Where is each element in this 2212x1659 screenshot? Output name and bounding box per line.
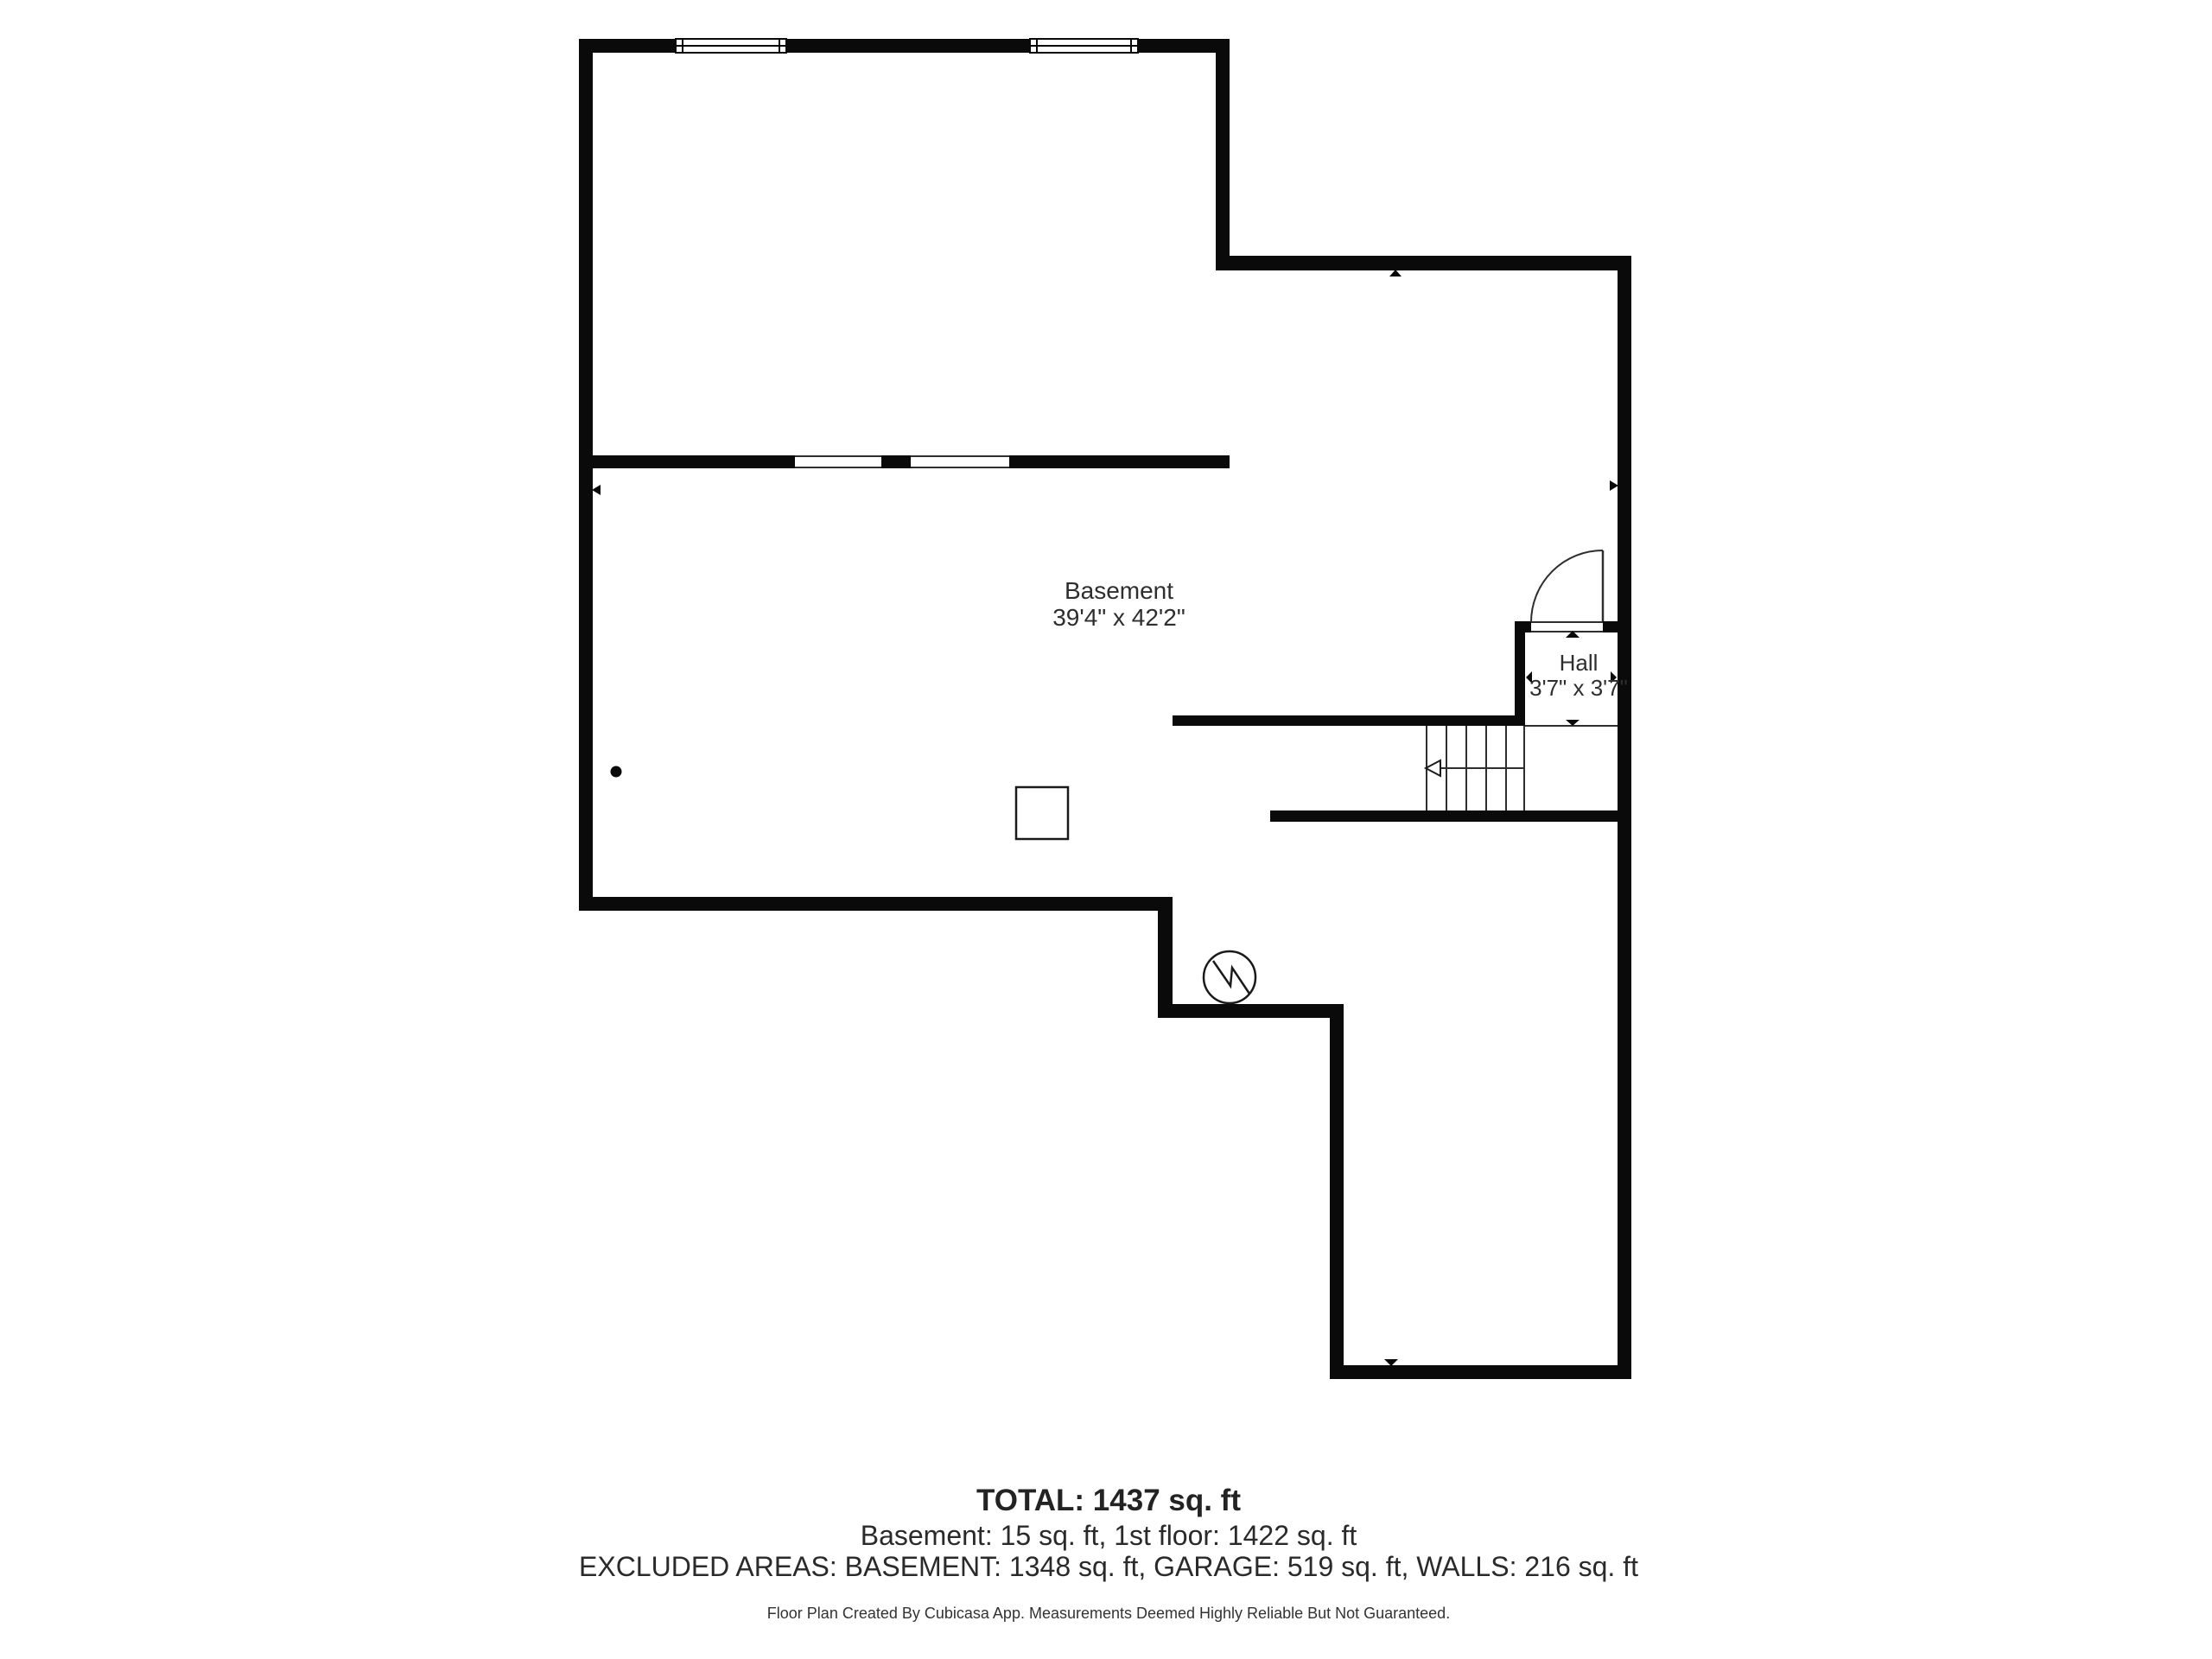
- wall-interior-1: [579, 455, 795, 468]
- stair-direction-arrow: [1426, 760, 1525, 776]
- room-label-basement: Basement 39'4" x 42'2": [1052, 577, 1185, 631]
- room-dimensions: 39'4" x 42'2": [1052, 604, 1185, 631]
- room-dimensions: 3'7" x 3'7": [1529, 676, 1628, 701]
- wall-left: [579, 39, 593, 911]
- disclaimer-text: Floor Plan Created By Cubicasa App. Meas…: [767, 1604, 1450, 1623]
- room-name: Basement: [1052, 577, 1185, 604]
- dimension-arrow-left-icon: [592, 485, 601, 495]
- opening-line: [795, 455, 881, 457]
- support-post-dot-icon: [611, 766, 622, 778]
- opening-line: [911, 455, 1009, 457]
- floor-plan-drawing: [0, 0, 2212, 1659]
- wall-interior-3: [1009, 455, 1230, 468]
- wall-openings: [795, 455, 1618, 727]
- column-square-icon: [1016, 787, 1068, 839]
- wall-garage-left: [1330, 1004, 1344, 1379]
- wall-step-right: [1158, 897, 1173, 1018]
- wall-basement-bottom: [579, 897, 1173, 911]
- dimension-arrow-right-icon: [1610, 480, 1618, 491]
- hall-arrow-down-icon: [1566, 720, 1580, 726]
- wall-door-jamb-left: [1515, 621, 1531, 632]
- window-icon: [1030, 39, 1138, 53]
- door-icon: [1531, 550, 1603, 622]
- up-triangle-marker-icon: [1389, 270, 1402, 276]
- opening-line: [1531, 631, 1603, 632]
- wall-top-room-right: [1216, 39, 1230, 270]
- room-name: Hall: [1529, 651, 1628, 676]
- exterior-walls: [579, 39, 1631, 1379]
- wall-stairwell-top: [1173, 715, 1525, 726]
- floor-areas-text: Basement: 15 sq. ft, 1st floor: 1422 sq.…: [861, 1519, 1357, 1552]
- room-label-hall: Hall 3'7" x 3'7": [1529, 651, 1628, 701]
- door-swing-arc: [1531, 550, 1603, 622]
- opening-line: [911, 467, 1009, 468]
- wall-below-stairs: [1270, 810, 1631, 822]
- hall-floor-line: [1525, 725, 1618, 727]
- wall-step-top: [1158, 1004, 1344, 1018]
- floor-plan-page: Basement 39'4" x 42'2" Hall 3'7" x 3'7" …: [0, 0, 2212, 1659]
- opening-line: [1531, 621, 1603, 623]
- window-icon: [676, 39, 786, 53]
- excluded-areas-text: EXCLUDED AREAS: BASEMENT: 1348 sq. ft, G…: [579, 1550, 1638, 1583]
- wall-garage-bottom: [1330, 1365, 1631, 1379]
- wall-hall-left: [1515, 621, 1525, 726]
- wall-right-arm-top: [1216, 256, 1631, 270]
- wall-interior-2: [881, 455, 911, 468]
- interior-walls: [579, 455, 1631, 822]
- total-area-text: TOTAL: 1437 sq. ft: [976, 1483, 1241, 1519]
- down-triangle-marker-icon: [1384, 1359, 1398, 1366]
- opening-line: [795, 467, 881, 468]
- utility-circle-icon: [1204, 951, 1255, 1003]
- wall-door-jamb-right: [1603, 621, 1618, 632]
